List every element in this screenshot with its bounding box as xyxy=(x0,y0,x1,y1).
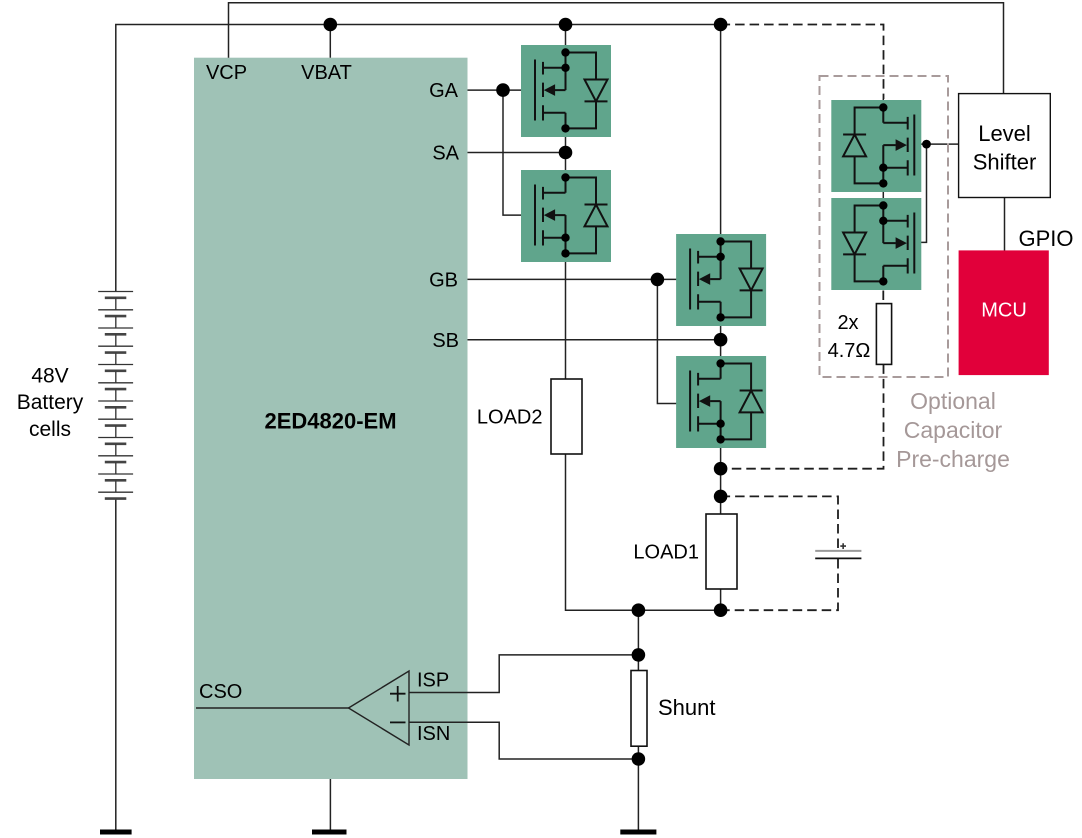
svg-text:ISN: ISN xyxy=(417,723,450,745)
svg-text:Pre-charge: Pre-charge xyxy=(896,446,1010,472)
svg-text:GB: GB xyxy=(429,270,458,292)
svg-text:GPIO: GPIO xyxy=(1019,226,1074,251)
svg-text:CSO: CSO xyxy=(199,681,242,703)
svg-text:ISP: ISP xyxy=(417,670,449,692)
svg-text:VCP: VCP xyxy=(206,62,247,84)
svg-text:MCU: MCU xyxy=(981,300,1027,322)
svg-text:LOAD2: LOAD2 xyxy=(477,407,543,429)
svg-text:Level: Level xyxy=(978,121,1031,146)
svg-text:2x: 2x xyxy=(837,312,858,334)
svg-text:SA: SA xyxy=(432,143,459,165)
svg-text:cells: cells xyxy=(29,418,71,441)
svg-text:Shifter: Shifter xyxy=(973,150,1037,175)
svg-text:2ED4820-EM: 2ED4820-EM xyxy=(264,409,396,434)
svg-text:SB: SB xyxy=(432,330,459,352)
svg-text:4.7Ω: 4.7Ω xyxy=(828,340,871,362)
svg-text:48V: 48V xyxy=(31,364,68,387)
svg-text:LOAD1: LOAD1 xyxy=(633,542,699,564)
svg-text:Capacitor: Capacitor xyxy=(904,417,1003,443)
svg-text:Battery: Battery xyxy=(17,391,84,414)
svg-text:GA: GA xyxy=(429,80,459,102)
svg-text:Optional: Optional xyxy=(910,388,996,414)
svg-text:VBAT: VBAT xyxy=(301,62,352,84)
svg-text:Shunt: Shunt xyxy=(658,695,716,720)
